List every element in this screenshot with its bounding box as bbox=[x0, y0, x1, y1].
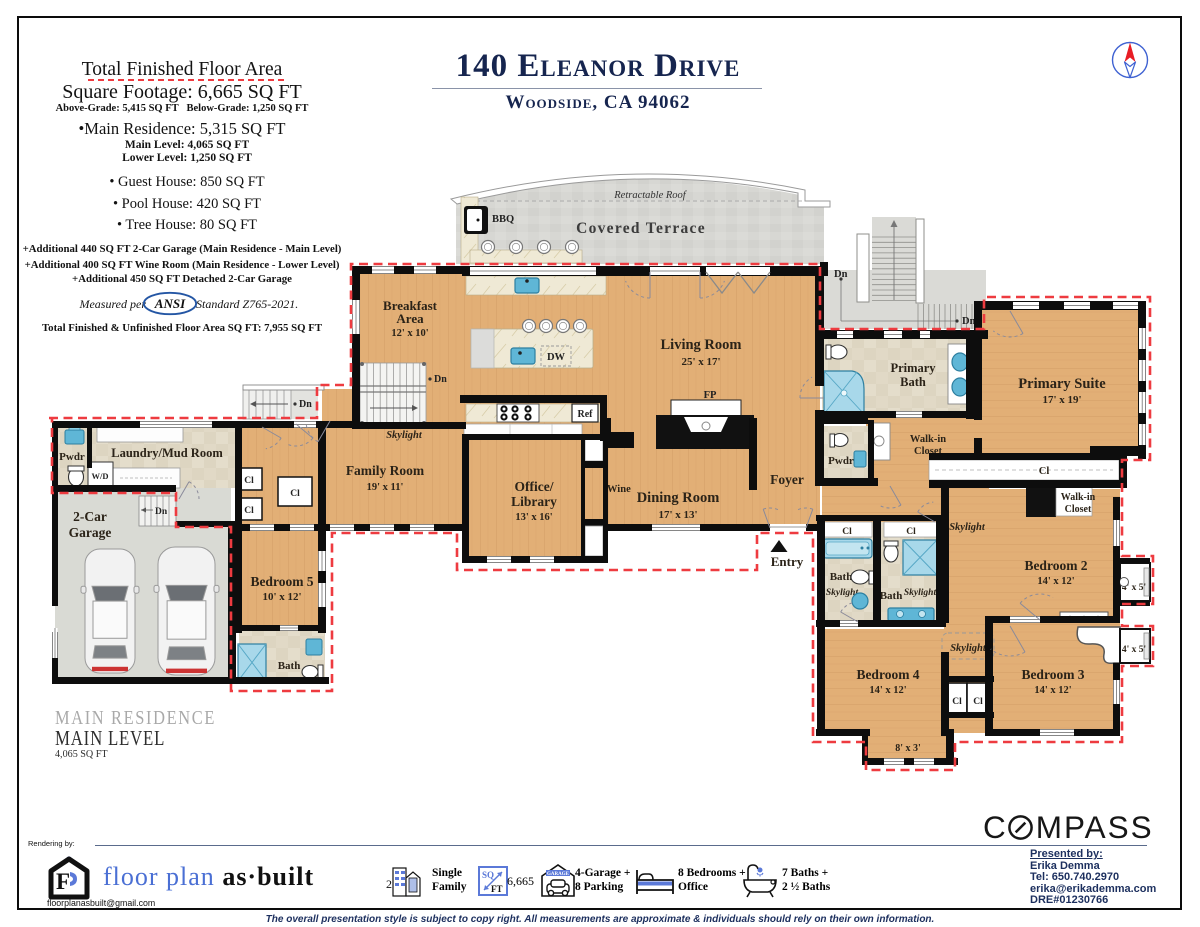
svg-text:GARAGE: GARAGE bbox=[547, 872, 570, 877]
svg-text:Dn: Dn bbox=[299, 399, 312, 410]
svg-text:Office/: Office/ bbox=[515, 479, 554, 494]
svg-text:Cl: Cl bbox=[973, 697, 983, 707]
svg-text:Laundry/Mud Room: Laundry/Mud Room bbox=[111, 446, 223, 460]
svg-text:W/D: W/D bbox=[92, 471, 109, 481]
svg-text:Closet: Closet bbox=[1065, 504, 1092, 515]
svg-text:Bath: Bath bbox=[830, 571, 853, 583]
svg-text:Bedroom 2: Bedroom 2 bbox=[1024, 558, 1087, 573]
svg-text:Covered Terrace: Covered Terrace bbox=[576, 220, 706, 237]
svg-text:Family Room: Family Room bbox=[346, 463, 425, 478]
svg-text:Wine: Wine bbox=[607, 484, 631, 495]
svg-text:8' x 3': 8' x 3' bbox=[895, 743, 921, 754]
svg-text:Bath: Bath bbox=[900, 375, 926, 389]
svg-text:14' x 12': 14' x 12' bbox=[869, 685, 906, 696]
svg-text:Area: Area bbox=[396, 311, 424, 326]
svg-text:Bath: Bath bbox=[278, 660, 301, 672]
svg-text:Bath: Bath bbox=[880, 590, 903, 602]
svg-text:Dining Room: Dining Room bbox=[637, 490, 720, 506]
svg-text:2-Car: 2-Car bbox=[73, 509, 107, 524]
svg-text:12' x 10': 12' x 10' bbox=[391, 328, 428, 339]
svg-text:4' x 5': 4' x 5' bbox=[1122, 645, 1146, 655]
svg-text:BBQ: BBQ bbox=[492, 214, 514, 225]
svg-text:F: F bbox=[56, 869, 70, 894]
svg-text:SQ: SQ bbox=[482, 870, 494, 880]
svg-text:14' x 12': 14' x 12' bbox=[1034, 685, 1071, 696]
svg-text:25' x 17': 25' x 17' bbox=[681, 356, 720, 368]
svg-text:13' x 16': 13' x 16' bbox=[515, 512, 552, 523]
svg-text:Skylight: Skylight bbox=[386, 430, 423, 441]
svg-text:Entry: Entry bbox=[771, 554, 804, 569]
svg-text:Bedroom 3: Bedroom 3 bbox=[1021, 667, 1084, 682]
svg-text:Dn: Dn bbox=[434, 374, 447, 385]
svg-text:Cl: Cl bbox=[1039, 466, 1050, 477]
svg-text:FT: FT bbox=[491, 884, 503, 894]
svg-text:Skylight: Skylight bbox=[950, 643, 987, 654]
svg-text:17' x 13': 17' x 13' bbox=[658, 509, 697, 521]
svg-text:Skylight: Skylight bbox=[949, 522, 986, 533]
svg-text:Foyer: Foyer bbox=[770, 472, 804, 487]
svg-text:Primary: Primary bbox=[890, 361, 936, 375]
svg-text:DW: DW bbox=[547, 352, 566, 363]
svg-text:Pwdr: Pwdr bbox=[828, 455, 854, 467]
svg-text:Library: Library bbox=[511, 494, 557, 509]
svg-text:Walk-in: Walk-in bbox=[1061, 492, 1096, 503]
svg-text:Skylight: Skylight bbox=[904, 588, 937, 598]
svg-text:Ref: Ref bbox=[578, 409, 594, 420]
svg-text:Pwdr: Pwdr bbox=[59, 451, 85, 463]
svg-text:FP: FP bbox=[704, 390, 717, 401]
svg-text:14' x 12': 14' x 12' bbox=[1037, 576, 1074, 587]
svg-text:Bedroom 4: Bedroom 4 bbox=[856, 667, 919, 682]
svg-text:Cl: Cl bbox=[244, 476, 254, 486]
svg-text:Cl: Cl bbox=[952, 697, 962, 707]
svg-text:17' x 19': 17' x 19' bbox=[1042, 394, 1081, 406]
svg-text:Walk-in: Walk-in bbox=[910, 434, 946, 445]
svg-text:Cl: Cl bbox=[842, 527, 852, 537]
svg-text:Retractable Roof: Retractable Roof bbox=[613, 190, 688, 201]
svg-text:Primary Suite: Primary Suite bbox=[1018, 376, 1106, 392]
svg-text:Dn: Dn bbox=[834, 269, 848, 280]
svg-text:Dn: Dn bbox=[962, 316, 976, 327]
svg-text:Bedroom 5: Bedroom 5 bbox=[250, 574, 313, 589]
svg-text:Garage: Garage bbox=[69, 525, 112, 540]
svg-text:10' x 12': 10' x 12' bbox=[262, 591, 301, 603]
svg-text:2: 2 bbox=[386, 877, 392, 891]
svg-text:Cl: Cl bbox=[906, 527, 916, 537]
svg-text:Cl: Cl bbox=[244, 506, 254, 516]
svg-text:Living Room: Living Room bbox=[661, 337, 742, 353]
svg-text:Cl: Cl bbox=[290, 489, 300, 499]
svg-text:19' x 11': 19' x 11' bbox=[367, 482, 404, 493]
svg-text:Dn: Dn bbox=[155, 507, 168, 517]
